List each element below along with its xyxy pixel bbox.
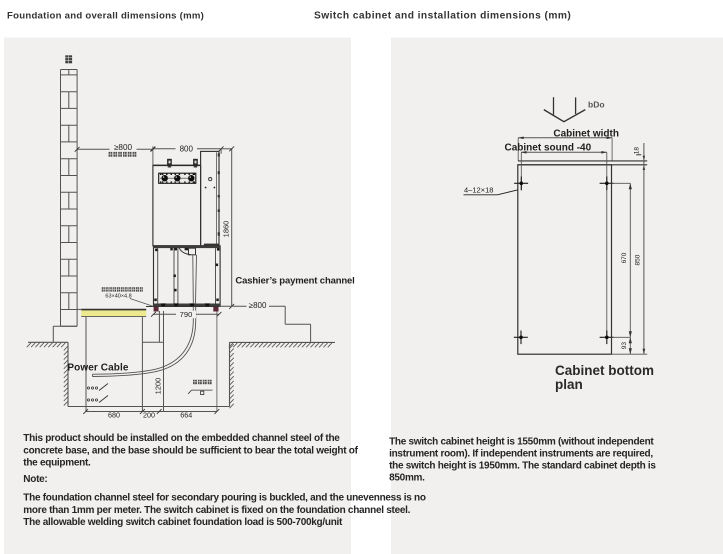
svg-text:800: 800 (180, 144, 194, 153)
svg-text:790: 790 (180, 310, 193, 319)
svg-text:the switch height is 1950mm. T: the switch height is 1950mm. The standar… (389, 461, 656, 472)
svg-text:This product should be install: This product should be installed on the … (23, 433, 340, 444)
svg-text:Power Cable: Power Cable (67, 362, 128, 373)
svg-text:670: 670 (621, 252, 628, 263)
svg-text:≥800: ≥800 (114, 143, 133, 152)
svg-text:plan: plan (555, 377, 583, 392)
svg-text:The allowable welding switch c: The allowable welding switch cabinet fou… (23, 517, 343, 528)
svg-text:4–12×18: 4–12×18 (464, 186, 493, 195)
svg-text:Cabinet bottom: Cabinet bottom (555, 363, 654, 378)
svg-text:680: 680 (108, 410, 120, 419)
svg-text:Note:: Note: (23, 474, 47, 485)
svg-text:The foundation channel steel f: The foundation channel steel for seconda… (23, 493, 426, 504)
svg-text:63×40×4.8: 63×40×4.8 (105, 293, 131, 299)
svg-text:18: 18 (634, 147, 641, 155)
svg-text:instrument room). If independe: instrument room). If independent instrum… (389, 449, 653, 460)
svg-text:The switch cabinet height is 1: The switch cabinet height is 1550mm (wit… (389, 437, 654, 448)
svg-text:850: 850 (635, 254, 642, 265)
svg-text:the equipment.: the equipment. (23, 458, 91, 469)
svg-text:Cashier’s payment channel: Cashier’s payment channel (235, 275, 354, 286)
svg-text:Foundation and overall dimensi: Foundation and overall dimensions (mm) (7, 11, 204, 22)
svg-text:664: 664 (180, 410, 192, 419)
svg-text:93: 93 (621, 342, 628, 350)
svg-text:1860: 1860 (222, 221, 231, 238)
svg-text:Switch cabinet and installatio: Switch cabinet and installation dimensio… (314, 11, 571, 22)
svg-text:more than 1mm per meter. The s: more than 1mm per meter. The switch cabi… (23, 505, 410, 516)
svg-text:bDo: bDo (588, 100, 605, 110)
svg-text:concrete base, and the base sh: concrete base, and the base should be su… (23, 445, 358, 456)
svg-text:200: 200 (143, 410, 155, 419)
svg-text:850mm.: 850mm. (389, 473, 425, 484)
svg-text:≥800: ≥800 (249, 301, 267, 310)
svg-text:1200: 1200 (153, 378, 162, 395)
